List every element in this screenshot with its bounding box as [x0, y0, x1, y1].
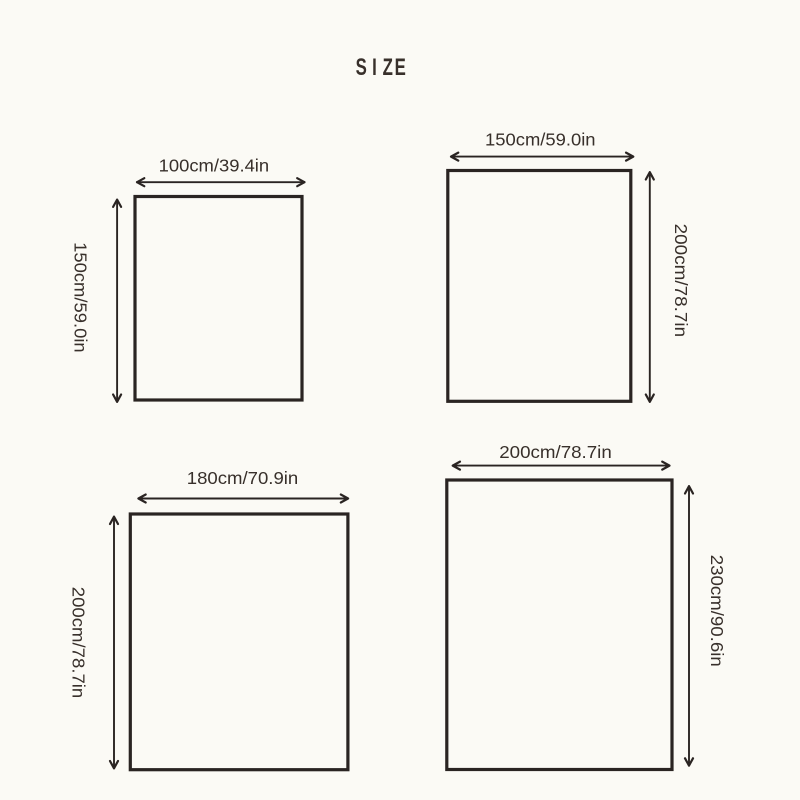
svg-text:200cm/78.7in: 200cm/78.7in: [671, 224, 691, 338]
svg-text:230cm/90.6in: 230cm/90.6in: [707, 555, 727, 667]
svg-text:150cm/59.0in: 150cm/59.0in: [485, 130, 596, 150]
svg-text:200cm/78.7in: 200cm/78.7in: [68, 587, 88, 699]
svg-text:I: I: [372, 54, 377, 81]
svg-text:S: S: [356, 54, 367, 81]
svg-text:100cm/39.4in: 100cm/39.4in: [159, 155, 270, 175]
svg-text:150cm/59.0in: 150cm/59.0in: [71, 242, 91, 353]
svg-text:180cm/70.9in: 180cm/70.9in: [187, 468, 299, 488]
svg-text:Z: Z: [383, 54, 394, 81]
svg-text:200cm/78.7in: 200cm/78.7in: [499, 442, 612, 462]
svg-text:E: E: [395, 54, 406, 81]
